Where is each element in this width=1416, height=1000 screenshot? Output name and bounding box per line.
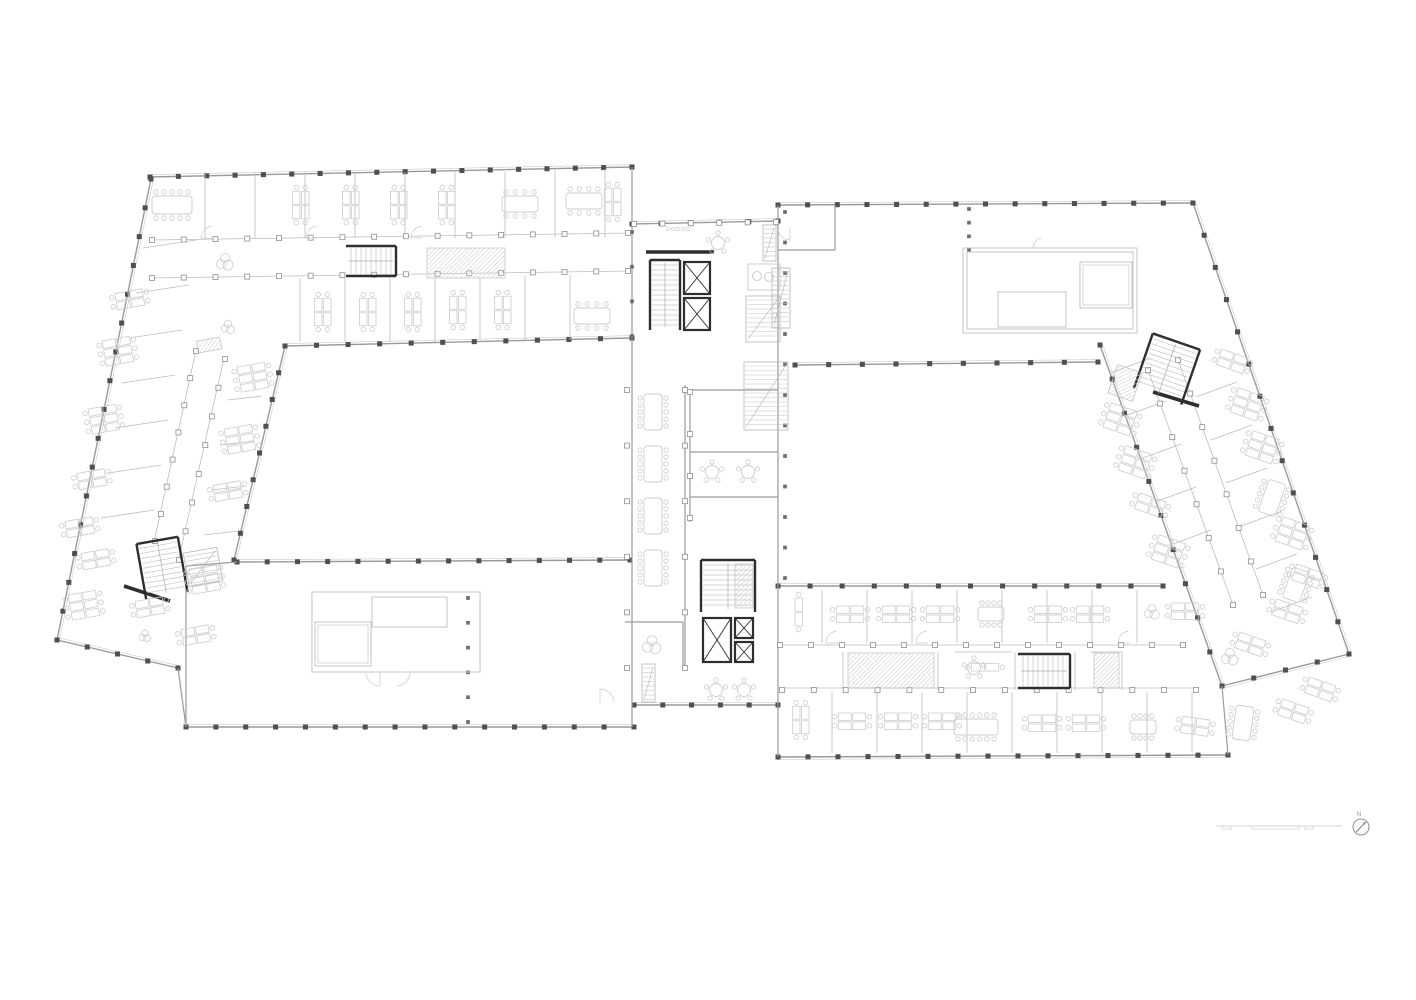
annotations: N bbox=[1216, 812, 1369, 835]
floor-plan-svg: N bbox=[0, 0, 1416, 1000]
plan-linework bbox=[55, 165, 1351, 760]
scale-figure bbox=[1216, 826, 1342, 829]
north-label: N bbox=[1357, 812, 1361, 818]
floor-plan-sheet: N bbox=[0, 0, 1416, 1000]
north-arrow: N bbox=[1353, 812, 1369, 835]
